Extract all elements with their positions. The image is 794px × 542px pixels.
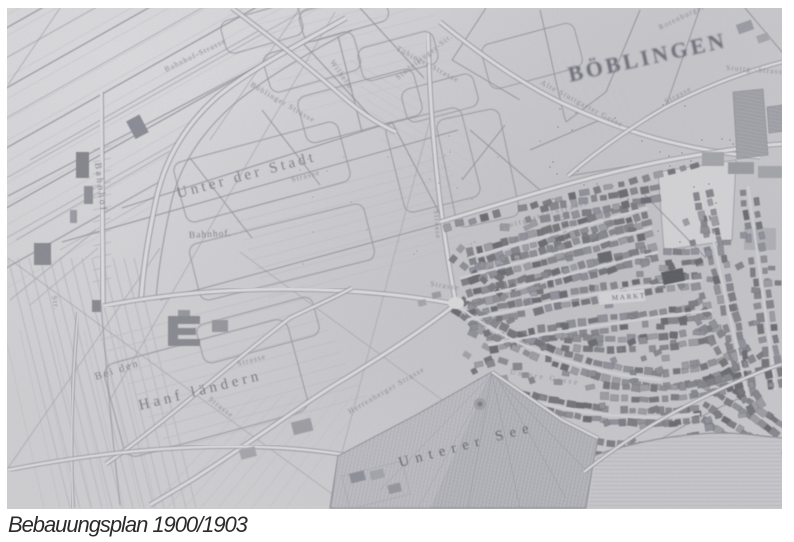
svg-text:Bahnhof.: Bahnhof.: [189, 228, 233, 241]
